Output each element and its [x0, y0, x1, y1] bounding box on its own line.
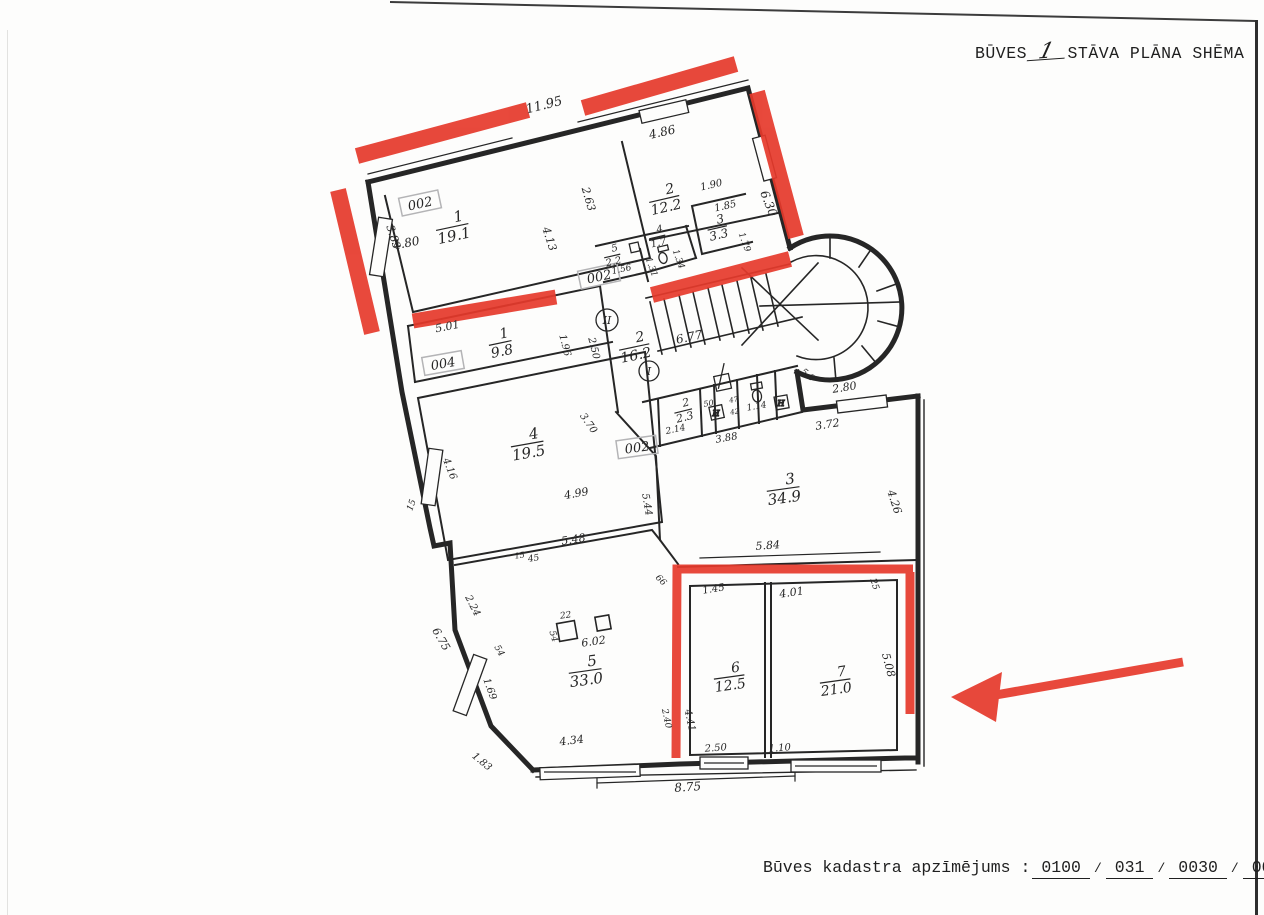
- svg-text:12.2: 12.2: [649, 196, 683, 219]
- dim-label: 3.88: [715, 431, 739, 446]
- svg-text:6: 6: [730, 659, 741, 676]
- svg-text:3: 3: [715, 211, 726, 226]
- room-label: 212.2: [645, 180, 683, 219]
- dim-label: 1.10: [768, 742, 792, 755]
- dim-label: 4.99: [562, 485, 589, 502]
- dim-label: 66: [653, 573, 668, 588]
- dim-label: 1.90: [699, 178, 724, 194]
- dim-label: 1.96: [556, 333, 572, 358]
- svg-text:1: 1: [498, 325, 510, 343]
- svg-text:2.3: 2.3: [674, 409, 695, 426]
- cadastre-number: 0030: [1169, 858, 1227, 879]
- svg-text:H: H: [777, 399, 786, 408]
- dim-label: 3.70: [577, 411, 599, 436]
- dim-label: 6.77: [675, 327, 704, 346]
- svg-text:3: 3: [784, 469, 796, 488]
- dim-label: 45: [526, 553, 540, 565]
- svg-text:5: 5: [586, 651, 598, 670]
- dim-label: 22: [558, 610, 572, 622]
- dim-label: 1.79: [736, 231, 752, 254]
- svg-text:33.0: 33.0: [569, 669, 605, 692]
- cadastre-number: 031: [1106, 858, 1154, 879]
- svg-text:4: 4: [654, 224, 664, 236]
- red-highlight-bar: [338, 190, 372, 333]
- red-highlight-bar: [413, 297, 556, 321]
- dim-label: 8.75: [674, 779, 702, 795]
- dim-label: 2.40: [659, 707, 673, 730]
- room-label: 41.7: [646, 223, 668, 250]
- svg-text:5: 5: [610, 243, 619, 255]
- cadastre-line: Būves kadastra apzīmējums : 0100 / 031 /…: [763, 858, 1264, 879]
- dim-label: 54: [492, 644, 507, 659]
- svg-text:7: 7: [836, 663, 847, 680]
- scan-edge-top: [390, 2, 1256, 21]
- dim-label: 4.01: [777, 584, 804, 600]
- dim-label: 15: [405, 498, 418, 512]
- page-title: BŪVES1STĀVA PLĀNA SHĒMA: [975, 44, 1235, 63]
- svg-text:9.8: 9.8: [490, 342, 515, 362]
- svg-text:2: 2: [633, 329, 646, 347]
- dim-label: 6.75: [429, 625, 453, 653]
- svg-text:4: 4: [526, 424, 540, 444]
- svg-text:19.1: 19.1: [436, 224, 472, 249]
- room-label: 721.0: [816, 663, 853, 700]
- scan-edge-right: [1255, 20, 1258, 915]
- title-floor-number: 1: [1027, 44, 1068, 62]
- room-label: 533.0: [566, 651, 605, 691]
- dim-label: 2.14: [664, 423, 687, 437]
- vent-shaft-icon: [713, 363, 731, 391]
- svg-text:II: II: [602, 314, 612, 327]
- room-label: 612.5: [711, 659, 747, 696]
- svg-text:16.2: 16.2: [619, 345, 653, 367]
- dim-label: 4.26: [884, 487, 904, 515]
- dim-label: 50: [703, 398, 715, 409]
- approval-stamp: 002: [399, 190, 442, 216]
- svg-text:H: H: [712, 409, 721, 418]
- dim-label: 2.50: [585, 335, 601, 361]
- dim-label: 25: [867, 576, 880, 591]
- cadastre-label: Būves kadastra apzīmējums :: [763, 858, 1030, 877]
- room-label: 419.5: [508, 423, 547, 464]
- dim-label: 4.34: [558, 733, 585, 749]
- dim-label: 4.41: [682, 707, 698, 732]
- svg-text:21.0: 21.0: [819, 680, 853, 700]
- dim-label: 11.95: [524, 94, 564, 118]
- cadastre-separator: /: [1155, 861, 1167, 876]
- cadastre-number: 0100: [1032, 858, 1090, 879]
- red-arrow: [951, 662, 1183, 722]
- svg-text:002: 002: [407, 195, 434, 215]
- dim-label: 5.08: [879, 652, 898, 679]
- svg-text:1.7: 1.7: [650, 236, 669, 250]
- dim-label: 6.02: [580, 633, 606, 649]
- cadastre-number: 001: [1243, 858, 1264, 879]
- dim-label: 1.83: [470, 751, 494, 774]
- dim-label: 5.8: [799, 367, 817, 384]
- approval-stamp: 004: [422, 351, 465, 376]
- dim-label: 5.84: [755, 538, 780, 553]
- room-label: 22.3: [670, 395, 695, 426]
- svg-text:34.9: 34.9: [767, 487, 803, 510]
- svg-text:I: I: [646, 365, 652, 378]
- dim-label: 4.13: [539, 224, 559, 252]
- room-label: 119.1: [432, 206, 472, 248]
- svg-text:002: 002: [586, 268, 613, 288]
- dim-label: 4.86: [647, 122, 678, 142]
- svg-text:2: 2: [663, 181, 676, 199]
- title-suffix: STĀVA PLĀNA SHĒMA: [1068, 44, 1245, 63]
- door-number-circle: II: [596, 309, 618, 331]
- room-label: 334.9: [764, 469, 803, 509]
- cadastre-separator: /: [1092, 861, 1104, 876]
- svg-text:19.5: 19.5: [511, 441, 547, 465]
- cadastre-separator: /: [1229, 861, 1241, 876]
- svg-text:3.3: 3.3: [708, 226, 730, 244]
- dim-label: 5.44: [639, 493, 654, 517]
- scanned-floor-plan-page: BŪVES1STĀVA PLĀNA SHĒMA: [0, 0, 1264, 915]
- room-label: 19.8: [486, 325, 515, 362]
- dim-label: 1.14: [746, 400, 768, 413]
- floor-plan-drawing: H H: [0, 0, 1264, 915]
- dim-label: 2.50: [703, 742, 728, 755]
- dim-label: 54: [547, 630, 560, 644]
- dim-label: 2.80: [830, 379, 857, 396]
- dim-label: 1.34: [670, 248, 686, 271]
- dim-label: 2.24: [462, 593, 482, 619]
- dim-label: 1.45: [702, 582, 726, 596]
- dim-label: 2.63: [578, 185, 598, 213]
- dim-label: 4.16: [440, 456, 459, 482]
- dim-label: 3.72: [814, 416, 840, 433]
- svg-text:12.5: 12.5: [714, 676, 747, 696]
- dim-label: 5.48: [560, 531, 586, 548]
- door-number-circle: I: [639, 361, 659, 381]
- dim-label: 15: [514, 550, 525, 560]
- title-prefix: BŪVES: [975, 44, 1027, 63]
- svg-text:1: 1: [452, 207, 465, 227]
- svg-text:2: 2: [680, 395, 691, 410]
- scan-edge-left: [7, 30, 8, 915]
